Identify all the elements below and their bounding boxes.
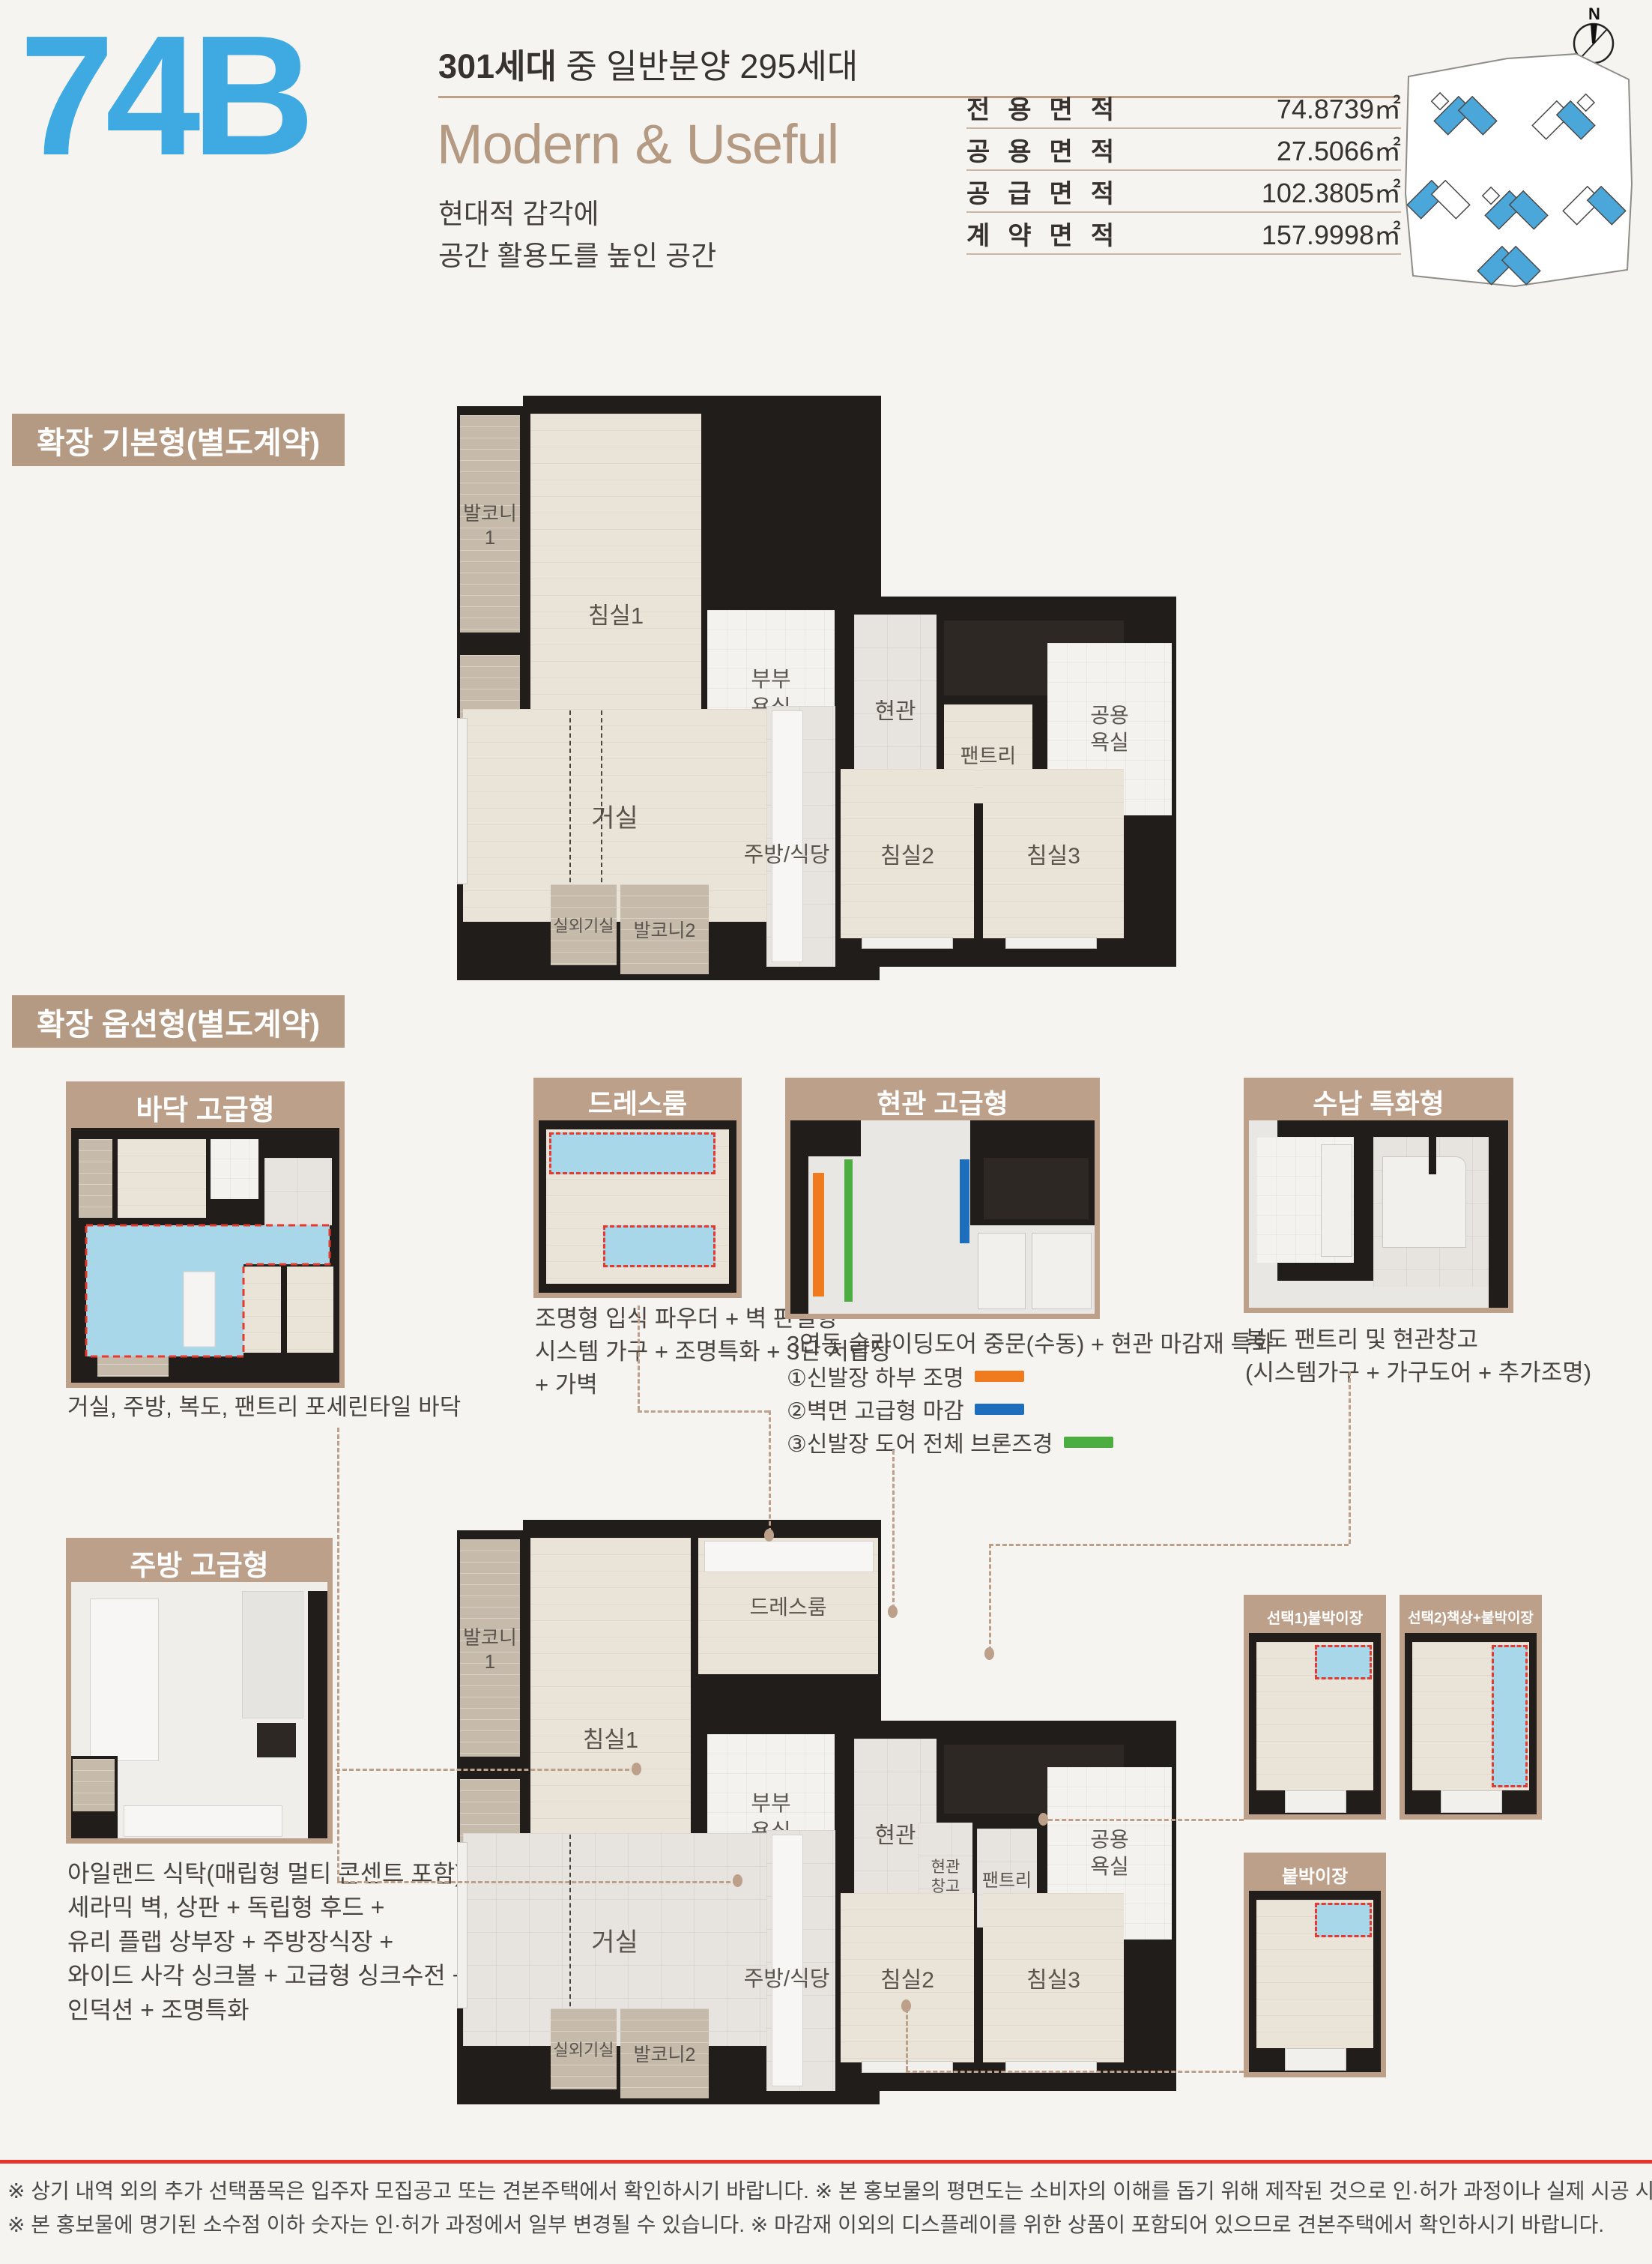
room-bedroom3: 침실3 — [983, 769, 1124, 938]
option-floor-box: 바닥 고급형 — [66, 1081, 345, 1388]
room-balcony2: 발코니2 — [620, 2008, 709, 2098]
connector-dot — [984, 1647, 994, 1660]
option-entrance-caption: 3연동 슬라이딩도어 중문(수동) + 현관 마감재 특화 — [787, 1328, 1274, 1361]
legend-item: ③신발장 도어 전체 브론즈경 — [787, 1425, 1113, 1458]
connector-dress — [638, 1410, 769, 1413]
option-dress-box: 드레스룸 — [533, 1078, 742, 1298]
option-floor-caption: 거실, 주방, 복도, 팬트리 포세린타일 바닥 — [67, 1391, 461, 1424]
legend-swatch — [975, 1404, 1024, 1415]
area-table: 전용면적 74.8739㎡ 공용면적 27.5066㎡ 공급면적 102.380… — [966, 87, 1401, 255]
room-ac: 실외기실 — [551, 2008, 617, 2089]
option-closet1-title: 선택1)붙박이장 — [1249, 1600, 1381, 1633]
section-base-title: 확장 기본형(별도계약) — [12, 414, 345, 466]
room-kitchen-label: 주방/식당 — [723, 1962, 850, 1992]
option-closet1-box: 선택1)붙박이장 — [1244, 1595, 1386, 1820]
closet1-highlight — [1315, 1645, 1372, 1679]
connector-floor — [337, 1428, 339, 1881]
room-ac: 실외기실 — [551, 884, 617, 965]
connector-closet12 — [1048, 1819, 1244, 1821]
connector-dot — [764, 1529, 774, 1542]
households-total: 301세대 — [438, 47, 557, 85]
table-row: 계약면적 157.9998㎡ — [966, 213, 1401, 255]
tagline-ko: 현대적 감각에 공간 활용도를 높인 공간 — [438, 193, 716, 277]
closet2-highlight — [1492, 1645, 1528, 1787]
option-floor-image — [71, 1128, 339, 1383]
room-bedroom3: 침실3 — [983, 1893, 1124, 2062]
connector-storage — [1349, 1371, 1351, 1544]
option-entrance-box: 현관 고급형 — [785, 1078, 1100, 1319]
area-label: 전용면적 — [966, 89, 1132, 126]
option-closet1-image — [1249, 1633, 1381, 1814]
connector-dot — [632, 1763, 641, 1775]
option-closet3-image — [1249, 1891, 1381, 2072]
option-closet3-title: 붙박이장 — [1249, 1858, 1381, 1891]
footer-disclaimer: ※ 상기 내역 외의 추가 선택품목은 입주자 모집공고 또는 견본주택에서 확… — [7, 2175, 1652, 2242]
floor-plan-base: 발코니1 하향식피난구 침실1 부부욕실 현관 팬트리 공용욕실 거실 주방/식… — [457, 396, 1176, 980]
disclaimer-line1: ※ 상기 내역 외의 추가 선택품목은 입주자 모집공고 또는 견본주택에서 확… — [7, 2175, 1652, 2209]
area-label: 공급면적 — [966, 173, 1132, 210]
option-dress-title: 드레스룸 — [539, 1083, 736, 1120]
table-row: 전용면적 74.8739㎡ — [966, 87, 1401, 129]
kitchen-counter — [772, 1835, 803, 2086]
connector-entrance — [892, 1450, 895, 1609]
legend-swatch — [975, 1371, 1024, 1382]
table-row: 공용면적 27.5066㎡ — [966, 129, 1401, 171]
legend-mark-blue — [960, 1159, 969, 1243]
table-row: 공급면적 102.3805㎡ — [966, 171, 1401, 213]
footer-divider — [0, 2160, 1652, 2164]
households-general: 중 일반분양 295세대 — [557, 47, 858, 85]
area-value: 27.5066㎡ — [1277, 130, 1401, 169]
connector-closet3 — [906, 2071, 1244, 2073]
connector-dress — [638, 1305, 640, 1410]
option-kitchen-title: 주방 고급형 — [71, 1543, 327, 1582]
floor-plan-option: 발코니1 하향식피난구 침실1 드레스룸 부부욕실 현관 현관창고 팬트리 공용… — [457, 1520, 1176, 2104]
connector-closet3 — [906, 2008, 908, 2071]
option-closet2-title: 선택2)책상+붙박이장 — [1405, 1600, 1537, 1633]
option-kitchen-box: 주방 고급형 — [66, 1538, 333, 1844]
area-value: 102.3805㎡ — [1262, 172, 1401, 211]
legend-item: ②벽면 고급형 마감 — [787, 1392, 1024, 1425]
option-closet3-box: 붙박이장 — [1244, 1853, 1386, 2077]
legend-swatch — [1064, 1437, 1113, 1448]
legend-mark-orange — [813, 1173, 824, 1296]
tagline-en: Modern & Useful — [437, 112, 838, 176]
room-kitchen-label: 주방/식당 — [723, 838, 850, 868]
option-closet2-image — [1405, 1633, 1537, 1814]
option-floor-title: 바닥 고급형 — [71, 1087, 339, 1128]
option-storage-box: 수납 특화형 — [1244, 1078, 1513, 1313]
connector-floor — [337, 1881, 737, 1883]
option-entrance-image — [790, 1120, 1095, 1314]
connector-dress — [769, 1410, 771, 1533]
room-balcony1: 발코니1 — [460, 415, 520, 633]
unit-code: 74B — [19, 19, 306, 173]
connector-dot — [888, 1605, 898, 1618]
option-closet2-box: 선택2)책상+붙박이장 — [1400, 1595, 1542, 1820]
disclaimer-line2: ※ 본 홍보물에 명기된 소수점 이하 숫자는 인·허가 과정에서 일부 변경될… — [7, 2209, 1652, 2242]
area-label: 계약면적 — [966, 215, 1132, 252]
dress-cabinet-bottom — [603, 1225, 715, 1267]
section-option-title: 확장 옵션형(별도계약) — [12, 995, 345, 1048]
area-label: 공용면적 — [966, 131, 1132, 168]
connector-storage — [989, 1544, 991, 1651]
tagline-ko-line1: 현대적 감각에 — [438, 193, 716, 235]
connector-kitchen — [336, 1769, 636, 1771]
connector-dot — [1038, 1813, 1048, 1826]
option-kitchen-image — [71, 1582, 327, 1838]
site-plan: N — [1403, 4, 1641, 291]
option-entrance-title: 현관 고급형 — [790, 1083, 1095, 1120]
option-storage-title: 수납 특화형 — [1249, 1083, 1508, 1120]
legend-mark-green — [844, 1159, 853, 1302]
brochure-page: 74B 301세대 중 일반분양 295세대 Modern & Useful 현… — [0, 0, 1652, 2264]
tagline-ko-line2: 공간 활용도를 높인 공간 — [438, 235, 716, 277]
area-value: 74.8739㎡ — [1277, 88, 1401, 127]
option-storage-caption: 복도 팬트리 및 현관창고 (시스템가구 + 가구도어 + 추가조명) — [1245, 1323, 1591, 1389]
connector-storage — [989, 1544, 1349, 1546]
households-line: 301세대 중 일반분양 295세대 — [438, 39, 858, 88]
option-dress-image — [539, 1120, 736, 1293]
dress-cabinet-top — [549, 1132, 715, 1174]
closet3-highlight — [1315, 1903, 1372, 1937]
compass-north-label: N — [1588, 4, 1600, 23]
room-bedroom2: 침실2 — [841, 769, 974, 938]
kitchen-counter — [772, 710, 803, 962]
connector-dot — [733, 1874, 742, 1887]
porcelain-tile-highlight — [71, 1128, 339, 1383]
room-balcony1: 발코니1 — [460, 1539, 520, 1757]
option-storage-image — [1249, 1120, 1508, 1308]
legend-item: ①신발장 하부 조명 — [787, 1359, 1024, 1392]
room-balcony2: 발코니2 — [620, 884, 709, 974]
area-value: 157.9998㎡ — [1262, 214, 1401, 253]
